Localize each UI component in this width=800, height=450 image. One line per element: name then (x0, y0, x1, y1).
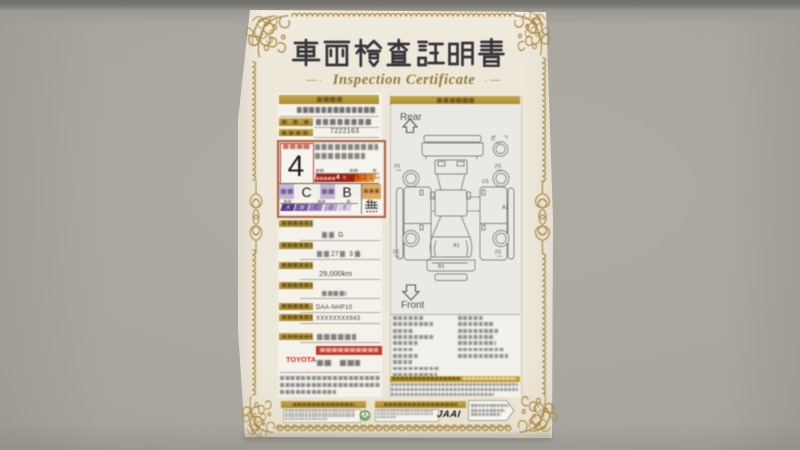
svg-text:A1: A1 (502, 205, 509, 211)
svg-text:mm: mm (497, 254, 502, 258)
svg-text:mm: mm (396, 168, 401, 172)
svg-text:U1: U1 (482, 179, 489, 185)
svg-text:B1: B1 (438, 264, 445, 270)
svg-text:Front: Front (401, 300, 425, 311)
svg-text:mm: mm (395, 254, 400, 258)
svg-text:mm: mm (496, 141, 501, 145)
svg-text:A1: A1 (453, 243, 460, 249)
svg-text:[ ]: [ ] (491, 136, 495, 142)
svg-text:mm: mm (497, 168, 502, 172)
svg-text:Rear: Rear (400, 112, 422, 123)
